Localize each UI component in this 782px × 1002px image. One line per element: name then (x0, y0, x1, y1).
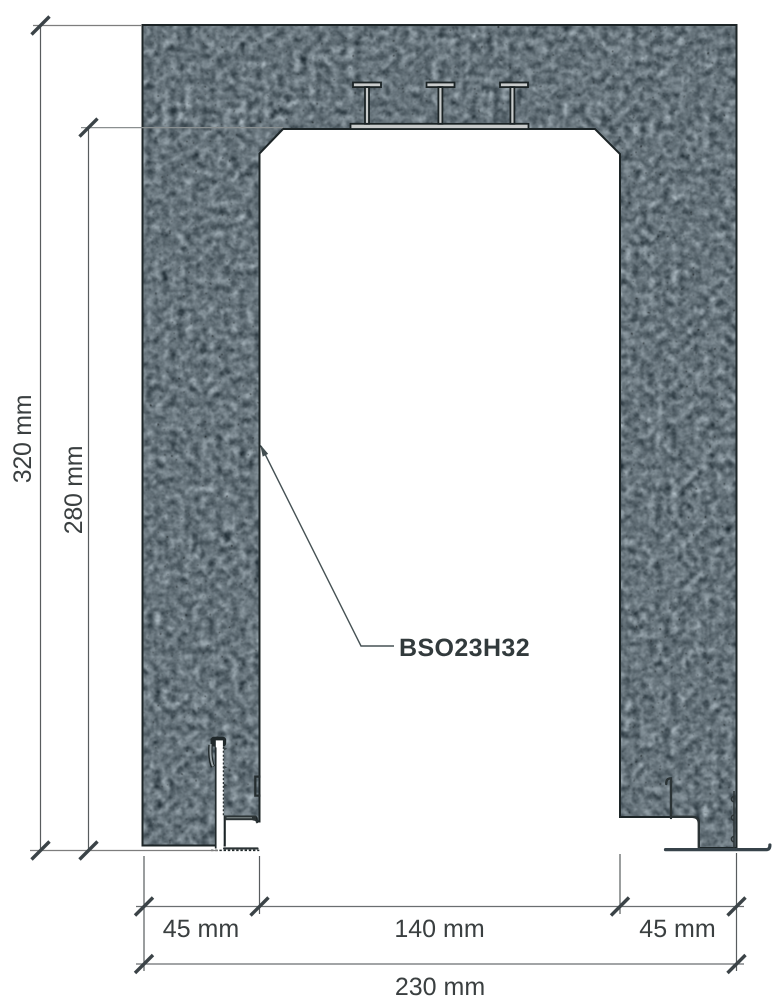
svg-text:230 mm: 230 mm (395, 973, 485, 1001)
svg-text:BSO23H32: BSO23H32 (399, 634, 530, 662)
svg-text:320 mm: 320 mm (9, 395, 37, 484)
svg-text:45 mm: 45 mm (163, 915, 239, 943)
svg-text:140 mm: 140 mm (394, 915, 484, 943)
svg-text:45 mm: 45 mm (639, 915, 715, 943)
svg-text:280 mm: 280 mm (60, 446, 88, 535)
